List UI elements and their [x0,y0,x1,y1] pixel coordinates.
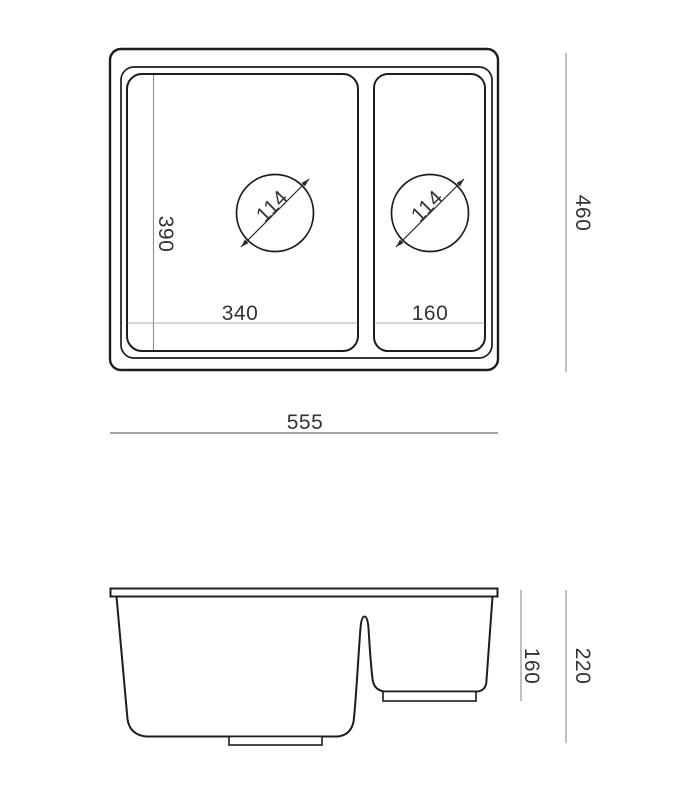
sink-drawing-canvas: 114 114 390 340 160 460 555 160 220 [0,0,683,800]
side-body-outline [117,597,493,737]
overall-width-label: 555 [287,411,324,434]
half-bowl-depth-label: 160 [520,648,543,685]
side-view: 160 220 [111,589,595,746]
main-bowl-foot [229,737,322,746]
half-bowl-foot [383,692,476,702]
main-bowl-length-label: 390 [154,216,177,253]
half-bowl-width-label: 160 [412,302,449,325]
top-view: 114 114 390 340 160 460 555 [110,49,594,434]
sink-drawing-page: 114 114 390 340 160 460 555 160 220 [0,0,683,800]
side-rim-outline [111,589,498,597]
overall-depth-label: 460 [571,195,594,232]
main-bowl-width-label: 340 [222,302,259,325]
overall-height-label: 220 [571,648,594,685]
